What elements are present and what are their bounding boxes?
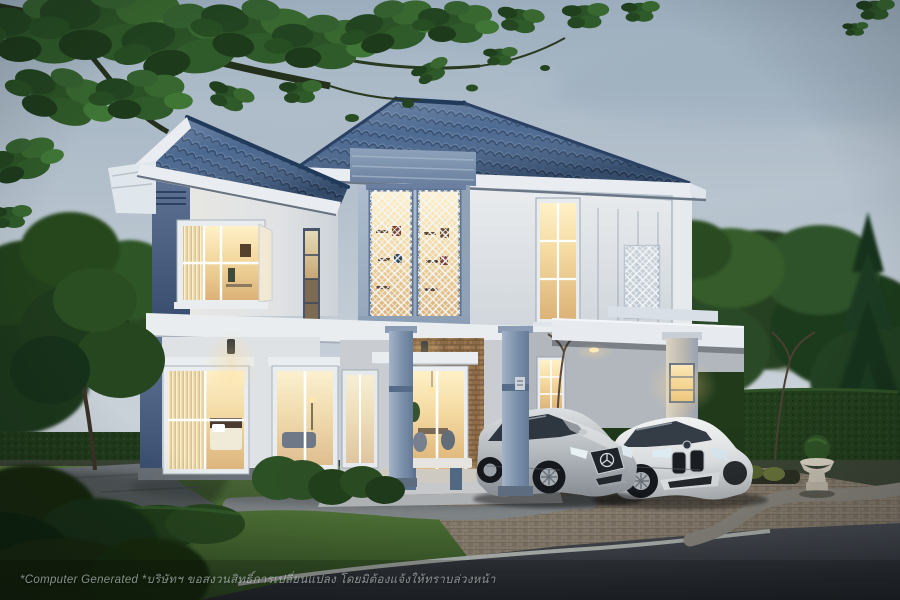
vignette [0, 0, 900, 600]
disclaimer-text: *Computer Generated *บริษัทฯ ขอสงวนสิทธิ… [20, 571, 496, 589]
architectural-render: *Computer Generated *บริษัทฯ ขอสงวนสิทธิ… [0, 0, 900, 600]
scene-canvas [0, 0, 900, 600]
